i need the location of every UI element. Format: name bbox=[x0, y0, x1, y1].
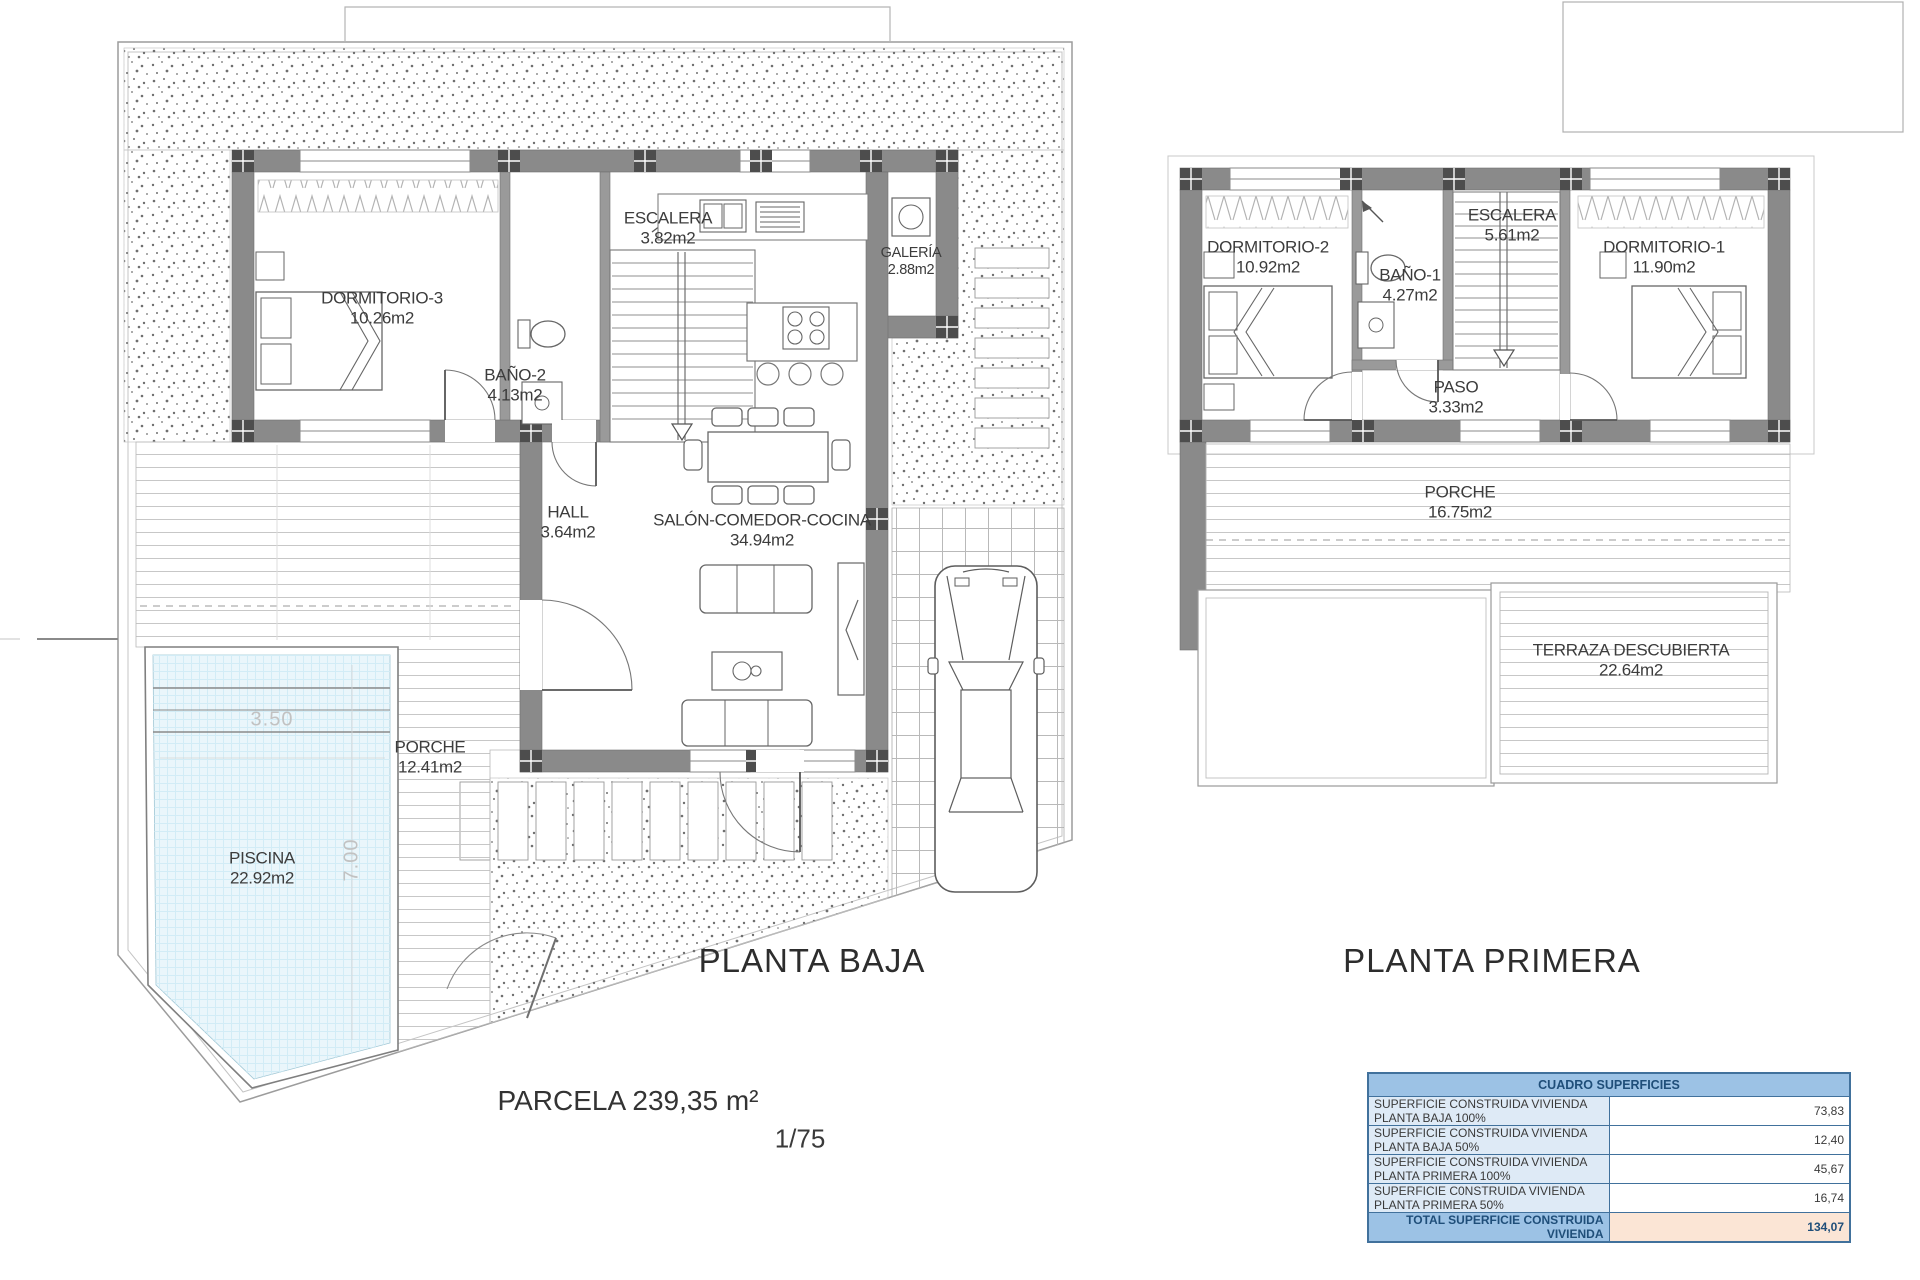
surface-row-label: SUPERFICIE C0NSTRUIDA VIVIENDA PLANTA PR… bbox=[1368, 1184, 1609, 1213]
pool-length-dim: 7.00 bbox=[341, 839, 364, 882]
surface-row-value: 73,83 bbox=[1609, 1097, 1850, 1126]
bedroom2-furniture bbox=[1204, 196, 1348, 410]
parcel-area-label: PARCELA 239,35 m² bbox=[498, 1085, 759, 1117]
room-label-dormitorio2: DORMITORIO-2 10.92m2 bbox=[1207, 237, 1329, 276]
room-label-escalera-ff: ESCALERA 5.61m2 bbox=[1468, 205, 1556, 244]
empty-reference-box bbox=[1563, 2, 1903, 132]
surface-row-value: 12,40 bbox=[1609, 1126, 1850, 1155]
room-label-porche-ff: PORCHE 16.75m2 bbox=[1425, 482, 1496, 521]
room-label-dormitorio1: DORMITORIO-1 11.90m2 bbox=[1603, 237, 1725, 276]
coffee-table bbox=[712, 652, 782, 690]
scale-label: 1/75 bbox=[775, 1124, 826, 1155]
room-label-porche-gf: PORCHE 12.41m2 bbox=[395, 737, 466, 776]
lower-roof-area bbox=[1198, 590, 1494, 786]
surface-row-label: SUPERFICIE CONSTRUIDA VIVIENDA PLANTA PR… bbox=[1368, 1155, 1609, 1184]
room-label-hall: HALL 3.64m2 bbox=[541, 502, 596, 541]
pool-width-dim: 3.50 bbox=[251, 709, 294, 732]
sofa-2 bbox=[682, 700, 812, 746]
surface-row-value: 45,67 bbox=[1609, 1155, 1850, 1184]
washing-machine bbox=[892, 198, 930, 236]
room-label-bano1: BAÑO-1 4.27m2 bbox=[1379, 265, 1441, 304]
ground-floor-plan bbox=[0, 7, 1072, 1102]
bed-double-2 bbox=[1204, 286, 1332, 378]
room-label-bano2: BAÑO-2 4.13m2 bbox=[484, 365, 546, 404]
room-label-escalera-gf: ESCALERA 3.82m2 bbox=[624, 208, 712, 247]
surface-row-value: 16,74 bbox=[1609, 1184, 1850, 1213]
table-total-row: TOTAL SUPERFICIE CONSTRUIDA VIVIENDA 134… bbox=[1368, 1213, 1850, 1243]
surface-table: CUADRO SUPERFICIES SUPERFICIE CONSTRUIDA… bbox=[1367, 1072, 1851, 1243]
surface-row-label: SUPERFICIE CONSTRUIDA VIVIENDA PLANTA BA… bbox=[1368, 1126, 1609, 1155]
first-floor-title: PLANTA PRIMERA bbox=[1343, 942, 1641, 980]
surface-table-title: CUADRO SUPERFICIES bbox=[1368, 1073, 1850, 1097]
sofa-1 bbox=[700, 565, 812, 613]
tv-cabinet bbox=[838, 563, 864, 695]
ground-floor-title: PLANTA BAJA bbox=[699, 942, 926, 980]
room-label-salon: SALÓN-COMEDOR-COCINA 34.94m2 bbox=[653, 510, 871, 549]
bed-double-1 bbox=[1632, 286, 1746, 378]
floorplan-sheet: DORMITORIO-3 10.26m2 BAÑO-2 4.13m2 ESCAL… bbox=[0, 0, 1920, 1280]
room-label-galeria: GALERÍA 2.88m2 bbox=[881, 245, 942, 279]
kitchen-island bbox=[747, 303, 857, 385]
surface-row-label: SUPERFICIE CONSTRUIDA VIVIENDA PLANTA BA… bbox=[1368, 1097, 1609, 1126]
table-row: SUPERFICIE CONSTRUIDA VIVIENDA PLANTA BA… bbox=[1368, 1126, 1850, 1155]
uncovered-terrace bbox=[1491, 583, 1777, 783]
table-row: SUPERFICIE CONSTRUIDA VIVIENDA PLANTA PR… bbox=[1368, 1155, 1850, 1184]
room-label-paso: PASO 3.33m2 bbox=[1429, 377, 1484, 416]
table-row: SUPERFICIE CONSTRUIDA VIVIENDA PLANTA BA… bbox=[1368, 1097, 1850, 1126]
room-label-dormitorio3: DORMITORIO-3 10.26m2 bbox=[321, 288, 443, 327]
surface-total-value: 134,07 bbox=[1609, 1213, 1850, 1243]
surface-total-label: TOTAL SUPERFICIE CONSTRUIDA VIVIENDA bbox=[1368, 1213, 1609, 1243]
table-row: SUPERFICIE C0NSTRUIDA VIVIENDA PLANTA PR… bbox=[1368, 1184, 1850, 1213]
car-top-view bbox=[928, 566, 1044, 892]
room-label-piscina: PISCINA 22.92m2 bbox=[229, 848, 295, 887]
room-label-terraza: TERRAZA DESCUBIERTA 22.64m2 bbox=[1533, 640, 1730, 679]
